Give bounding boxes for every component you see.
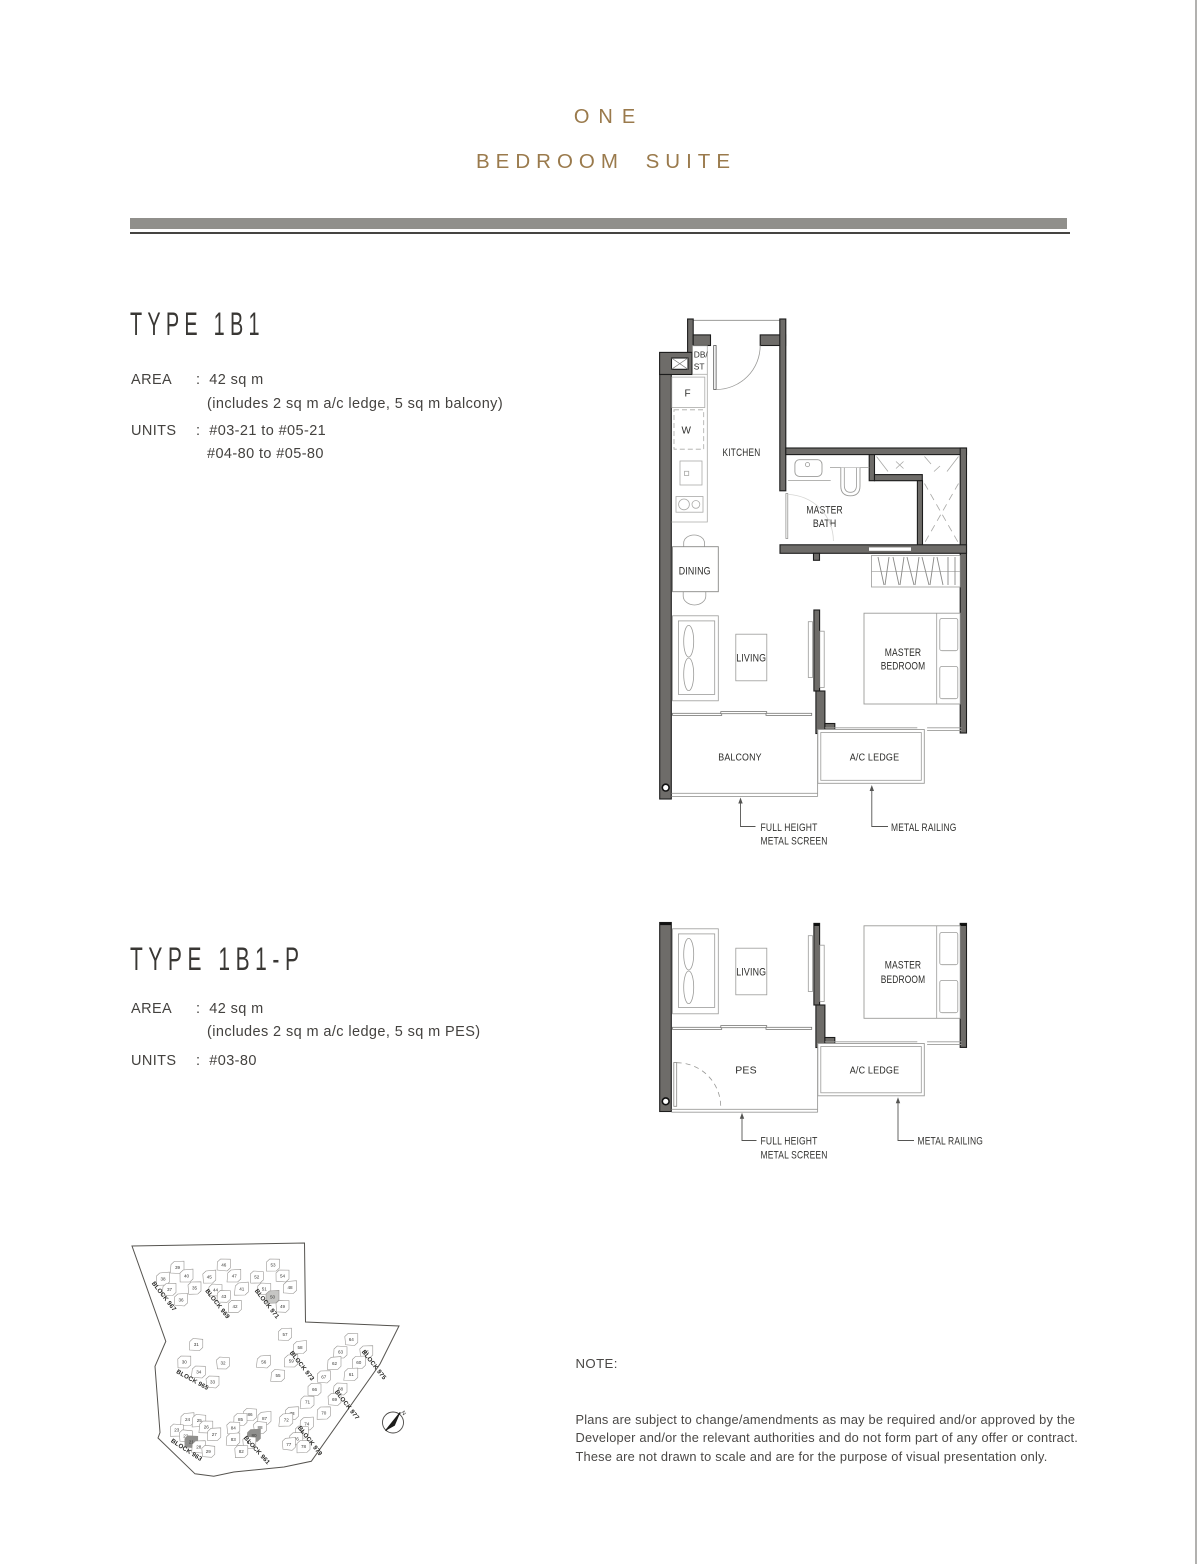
svg-text:71: 71 [305, 1400, 311, 1405]
svg-text:57: 57 [282, 1332, 288, 1337]
svg-text:49: 49 [280, 1304, 286, 1309]
svg-text:31: 31 [194, 1342, 200, 1347]
svg-text:55: 55 [275, 1373, 281, 1378]
svg-text:BEDROOM: BEDROOM [881, 974, 926, 986]
svg-text:45: 45 [207, 1275, 213, 1280]
svg-text:48: 48 [287, 1285, 293, 1290]
svg-text:26: 26 [204, 1425, 210, 1430]
svg-text:27: 27 [212, 1432, 218, 1437]
svg-text:43: 43 [221, 1294, 227, 1299]
svg-text:50: 50 [270, 1295, 276, 1300]
svg-text:38: 38 [160, 1277, 166, 1282]
svg-text:BALCONY: BALCONY [718, 752, 762, 764]
svg-text:MASTER: MASTER [885, 960, 922, 972]
svg-text:87: 87 [262, 1416, 268, 1421]
svg-text:52: 52 [254, 1275, 260, 1280]
svg-text:82: 82 [239, 1449, 245, 1454]
svg-text:78: 78 [301, 1444, 307, 1449]
svg-text:KITCHEN: KITCHEN [723, 447, 761, 459]
svg-text:54: 54 [280, 1274, 286, 1279]
svg-text:39: 39 [175, 1265, 181, 1270]
svg-text:F: F [685, 389, 691, 400]
svg-text:METAL SCREEN: METAL SCREEN [761, 1149, 828, 1161]
svg-text:ST: ST [694, 362, 705, 372]
svg-text:DINING: DINING [679, 566, 711, 578]
svg-text:41: 41 [239, 1287, 245, 1292]
svg-text:58: 58 [297, 1345, 303, 1350]
svg-text:77: 77 [286, 1442, 292, 1447]
svg-text:W: W [682, 426, 692, 437]
svg-text:85: 85 [238, 1417, 244, 1422]
svg-text:53: 53 [270, 1263, 276, 1268]
svg-text:63: 63 [338, 1350, 344, 1355]
svg-text:33: 33 [210, 1380, 216, 1385]
svg-text:A/C LEDGE: A/C LEDGE [850, 752, 900, 764]
svg-text:LIVING: LIVING [736, 653, 766, 665]
svg-text:60: 60 [356, 1360, 362, 1365]
svg-text:42: 42 [232, 1304, 238, 1309]
svg-text:24: 24 [185, 1417, 191, 1422]
svg-text:23: 23 [174, 1428, 180, 1433]
svg-text:47: 47 [232, 1274, 238, 1279]
svg-text:36: 36 [178, 1298, 184, 1303]
svg-text:83: 83 [231, 1437, 237, 1442]
svg-text:28: 28 [196, 1445, 202, 1450]
svg-text:METAL RAILING: METAL RAILING [891, 822, 957, 834]
svg-text:METAL SCREEN: METAL SCREEN [761, 836, 828, 848]
svg-text:BEDROOM: BEDROOM [881, 661, 926, 673]
svg-text:44: 44 [213, 1288, 219, 1293]
svg-text:MASTER: MASTER [885, 647, 922, 659]
svg-text:N: N [399, 1410, 406, 1417]
svg-text:FULL HEIGHT: FULL HEIGHT [761, 822, 818, 834]
svg-text:51: 51 [262, 1287, 268, 1292]
svg-text:29: 29 [206, 1449, 212, 1454]
svg-text:35: 35 [192, 1286, 198, 1291]
svg-text:METAL RAILING: METAL RAILING [918, 1136, 984, 1148]
svg-text:66: 66 [312, 1387, 318, 1392]
svg-text:34: 34 [196, 1370, 202, 1375]
svg-text:LIVING: LIVING [736, 967, 766, 979]
svg-text:64: 64 [349, 1337, 355, 1342]
svg-text:PES: PES [735, 1065, 757, 1077]
svg-text:MASTER: MASTER [806, 505, 843, 517]
svg-text:FULL HEIGHT: FULL HEIGHT [761, 1136, 818, 1148]
svg-text:32: 32 [220, 1361, 226, 1366]
svg-text:37: 37 [167, 1287, 173, 1292]
svg-text:61: 61 [349, 1372, 355, 1377]
svg-text:69: 69 [332, 1397, 338, 1402]
svg-text:84: 84 [231, 1426, 237, 1431]
svg-text:56: 56 [261, 1360, 267, 1365]
svg-text:46: 46 [221, 1263, 227, 1268]
svg-text:70: 70 [321, 1411, 327, 1416]
svg-text:62: 62 [332, 1361, 338, 1366]
svg-text:A/C LEDGE: A/C LEDGE [850, 1065, 900, 1077]
svg-text:72: 72 [284, 1418, 290, 1423]
svg-text:40: 40 [184, 1274, 190, 1279]
svg-text:BATH: BATH [813, 518, 837, 530]
svg-text:74: 74 [304, 1422, 310, 1427]
svg-text:86: 86 [247, 1412, 253, 1417]
svg-text:30: 30 [182, 1360, 188, 1365]
svg-text:67: 67 [321, 1375, 327, 1380]
svg-text:DB/: DB/ [694, 349, 709, 359]
